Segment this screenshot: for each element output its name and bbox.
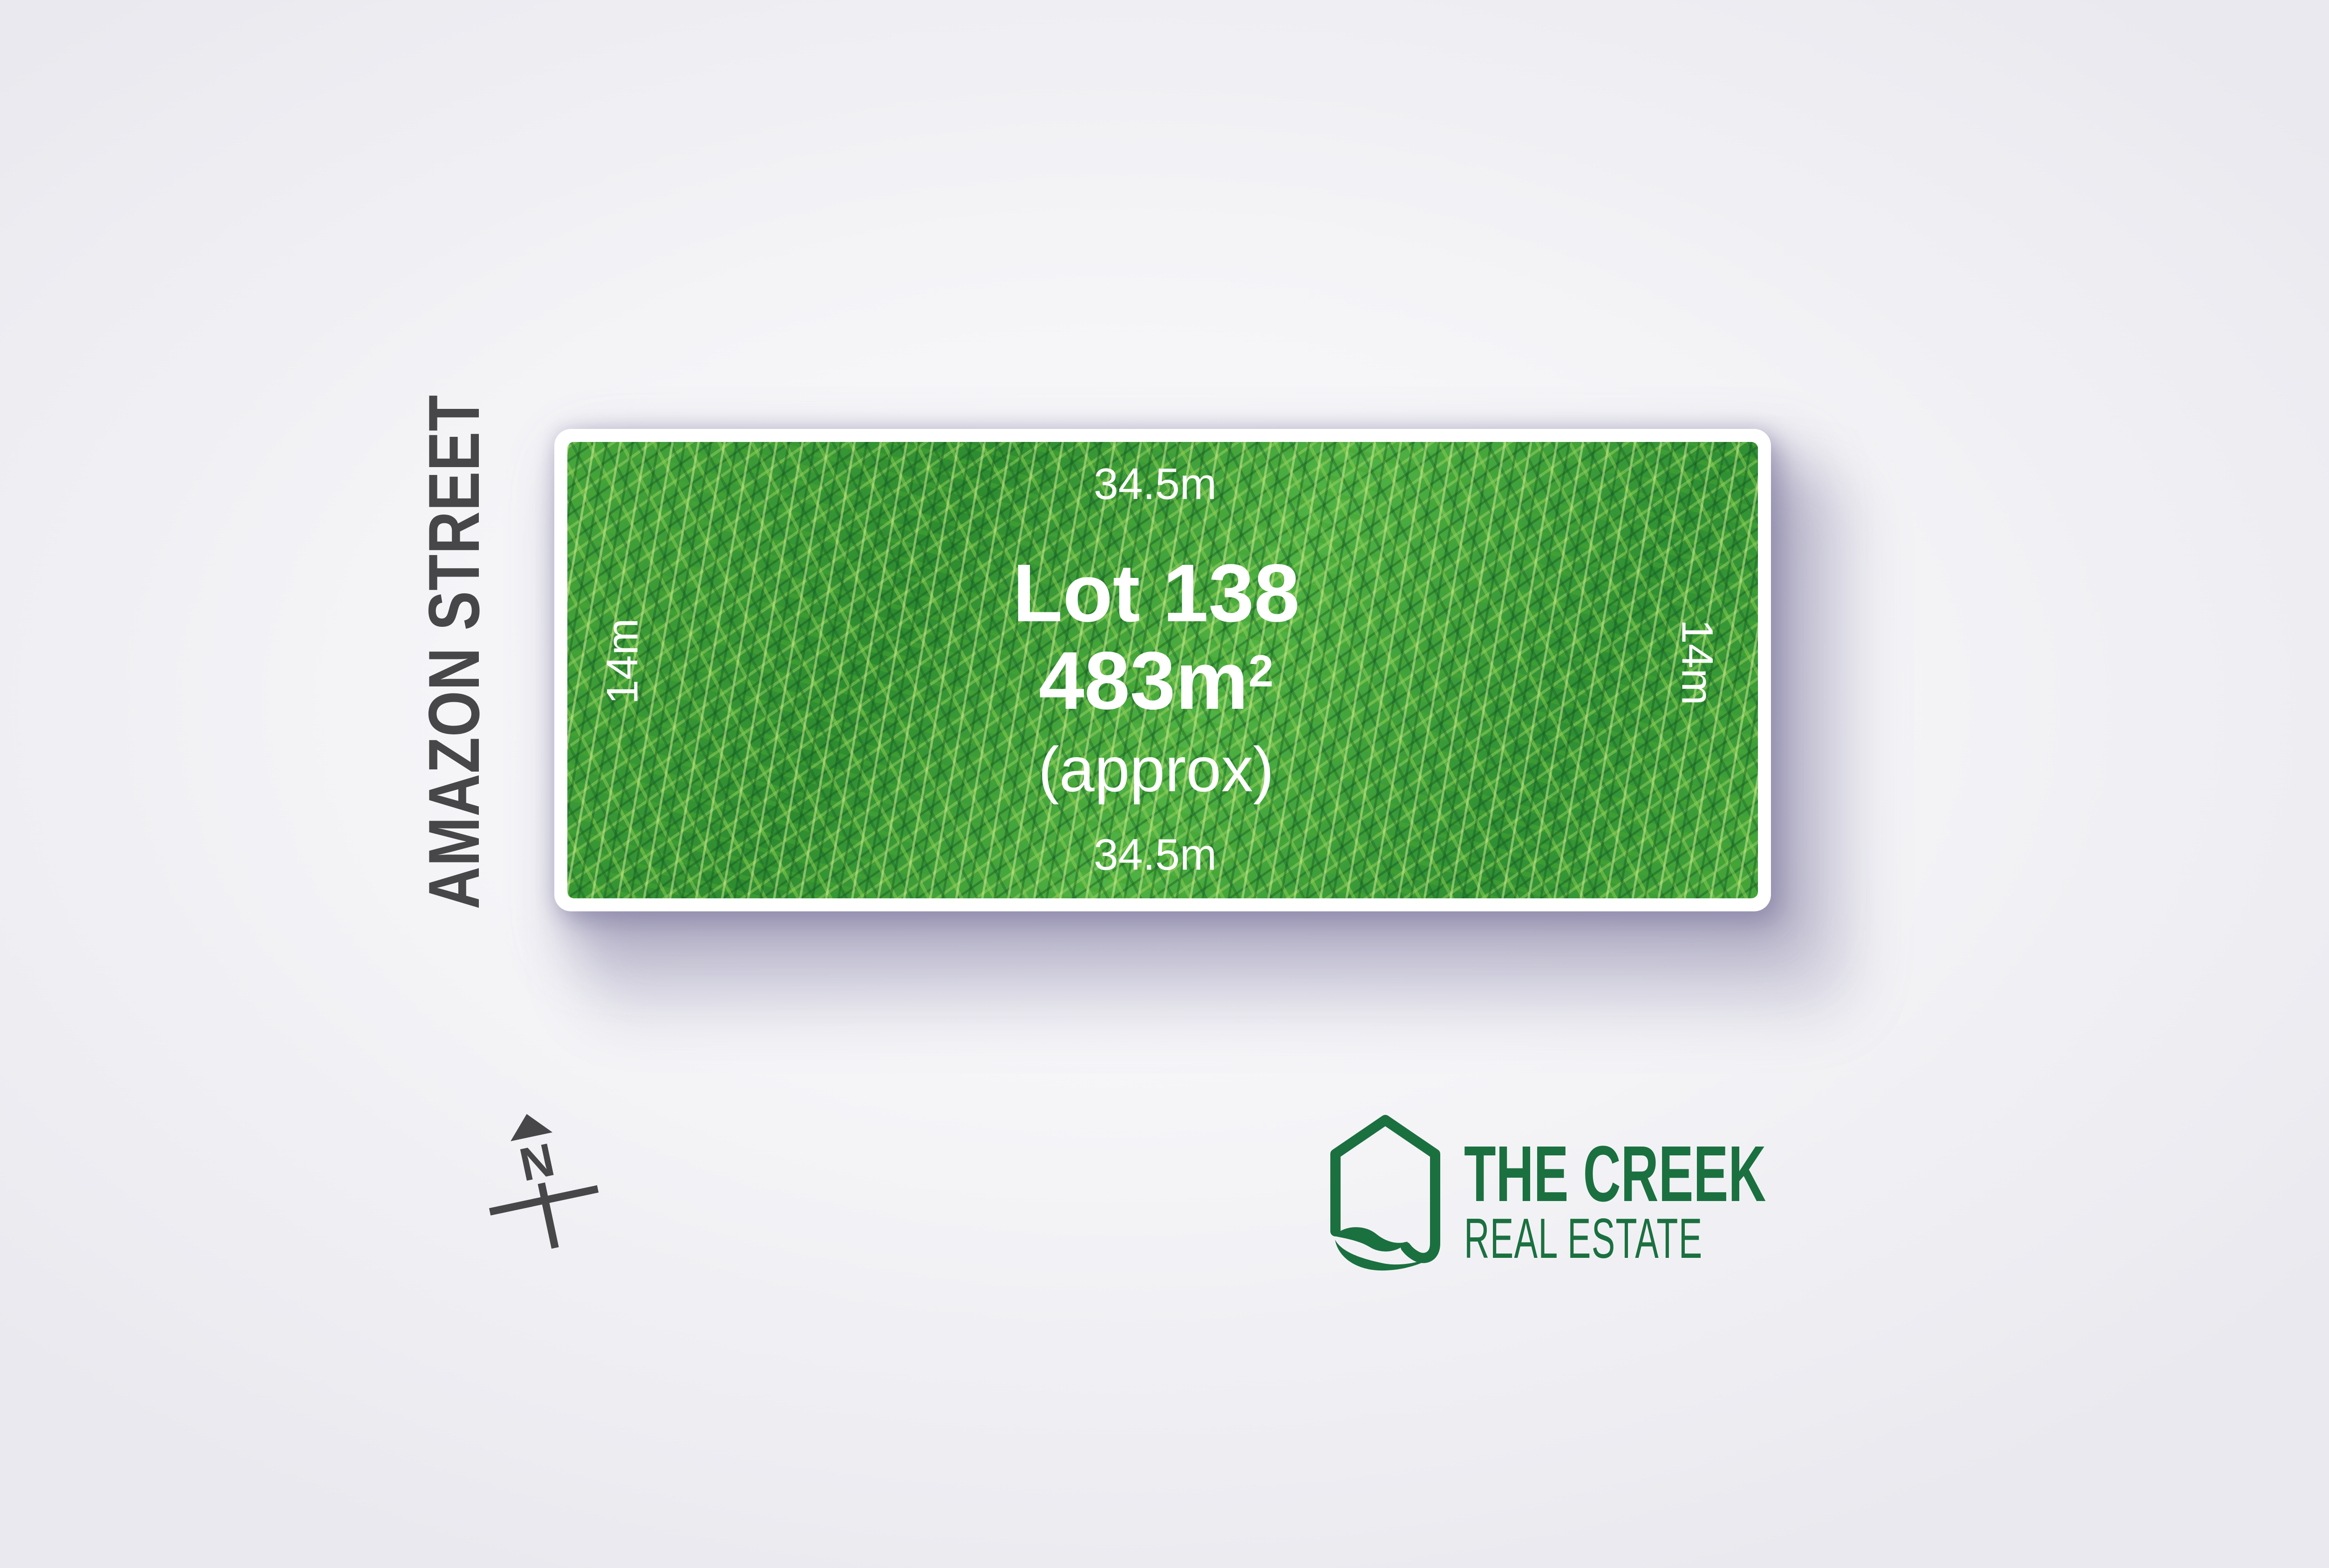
north-compass: N — [471, 1102, 611, 1263]
compass-north-label: N — [477, 1128, 597, 1197]
lot-depth-left-label: 14m — [601, 618, 645, 705]
brand-subtitle: REAL ESTATE — [1464, 1210, 1702, 1267]
survey-cross-icon — [538, 1182, 558, 1249]
lot-number-label: Lot 138 — [1013, 552, 1300, 634]
lot-area-label: 483m2 — [1039, 640, 1273, 722]
lot-area-qualifier-label: (approx) — [1038, 738, 1274, 801]
brand-name: THE CREEK — [1464, 1134, 1766, 1214]
lot-area-superscript: 2 — [1248, 645, 1273, 696]
lot-flyer: AMAZON STREET 34.5m Lot 138 483m2 (appro… — [0, 0, 2329, 1568]
lot-depth-right-label: 14m — [1675, 619, 1719, 706]
street-name-label: AMAZON STREET — [413, 394, 496, 909]
lot-frontage-top-label: 34.5m — [1094, 462, 1217, 507]
lot-frontage-bottom-label: 34.5m — [1094, 833, 1217, 877]
house-creek-logo-icon — [1329, 1114, 1442, 1272]
lot-area-value: 483m — [1039, 635, 1248, 726]
